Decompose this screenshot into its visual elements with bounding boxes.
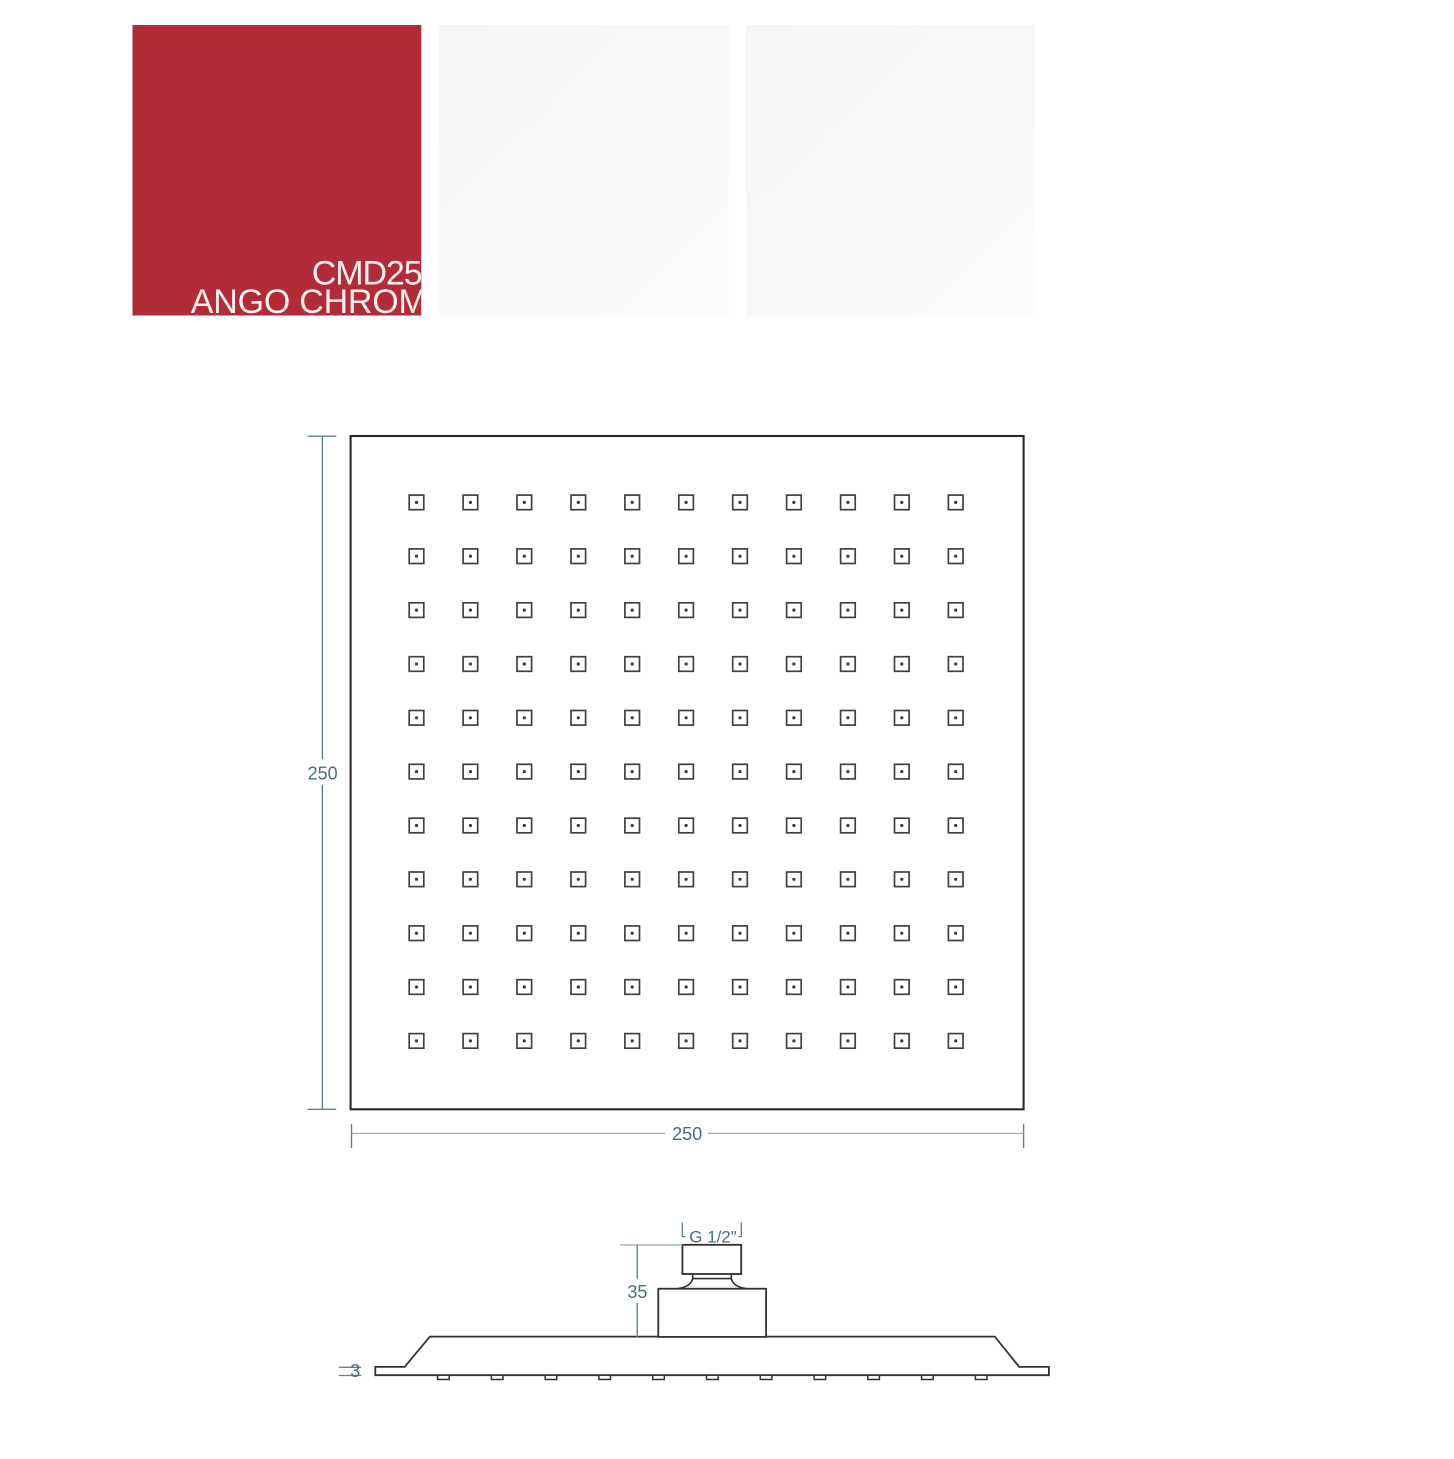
svg-text:250: 250	[672, 1124, 702, 1144]
svg-text:G 1/2": G 1/2"	[689, 1227, 737, 1246]
svg-text:250: 250	[308, 763, 338, 783]
svg-text:ANGO CHROME: ANGO CHROME	[191, 283, 449, 321]
svg-text:35: 35	[627, 1282, 647, 1302]
svg-text:3: 3	[350, 1361, 360, 1381]
